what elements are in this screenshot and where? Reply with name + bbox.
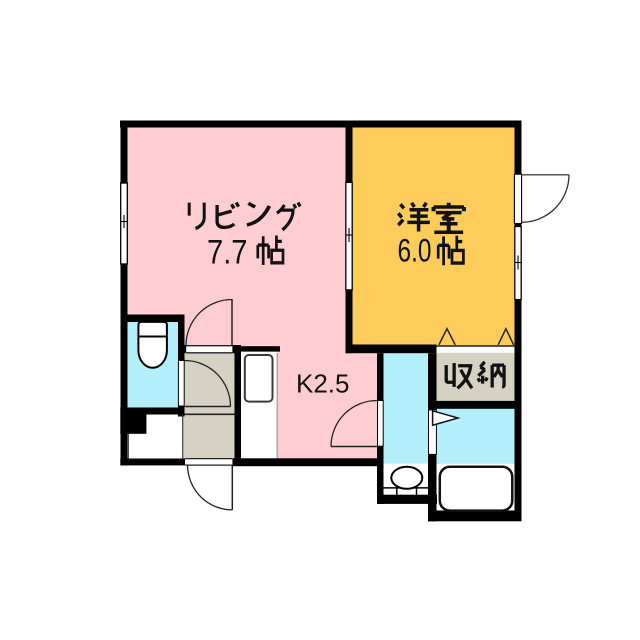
svg-text:K2.5: K2.5 bbox=[296, 368, 350, 398]
svg-text:6.0: 6.0 bbox=[398, 233, 432, 269]
svg-text:7.7: 7.7 bbox=[207, 234, 248, 272]
